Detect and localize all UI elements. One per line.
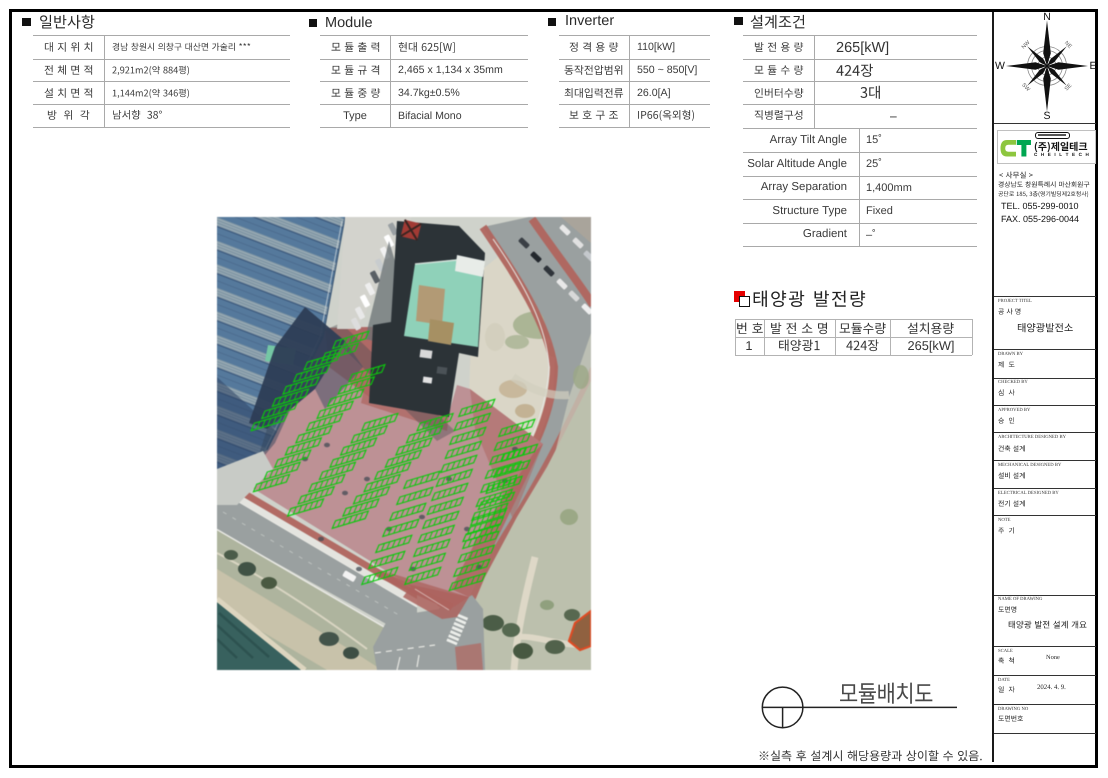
svg-text:SW: SW: [1020, 82, 1031, 93]
